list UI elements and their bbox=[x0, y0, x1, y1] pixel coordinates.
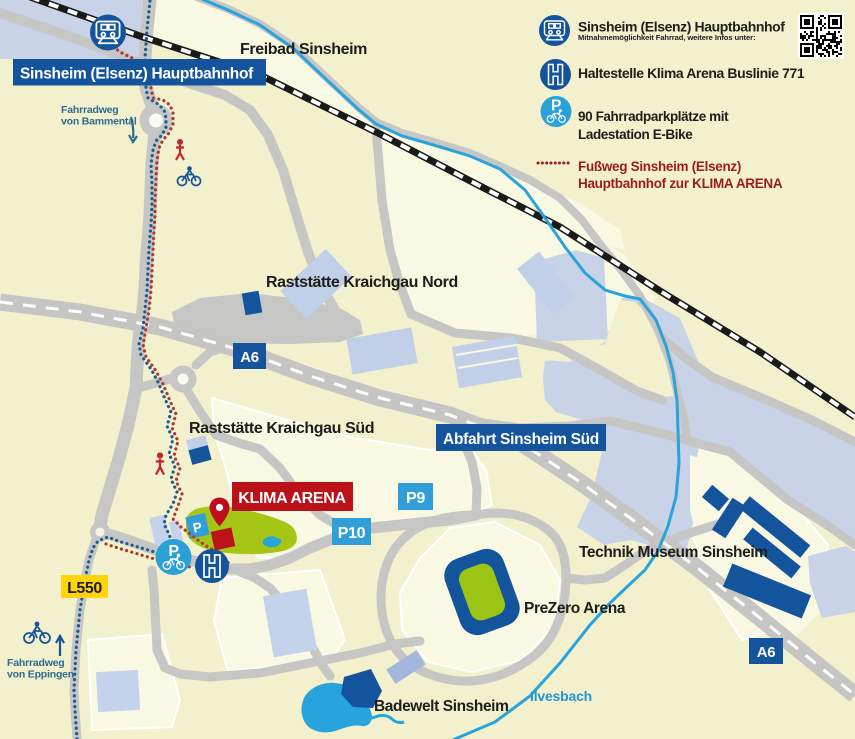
svg-text:A6: A6 bbox=[757, 644, 776, 661]
svg-text:P9: P9 bbox=[406, 490, 425, 507]
svg-text:Ilvesbach: Ilvesbach bbox=[530, 688, 592, 704]
svg-text:von Bammental: von Bammental bbox=[61, 116, 137, 128]
svg-text:Ladestation E-Bike: Ladestation E-Bike bbox=[578, 127, 693, 142]
svg-text:Fußweg Sinsheim (Elsenz): Fußweg Sinsheim (Elsenz) bbox=[578, 159, 741, 174]
svg-text:90 Fahrradparkplätze mit: 90 Fahrradparkplätze mit bbox=[578, 109, 729, 124]
svg-text:Raststätte Kraichgau Süd: Raststätte Kraichgau Süd bbox=[189, 420, 374, 437]
svg-text:Hauptbahnhof zur KLIMA ARENA: Hauptbahnhof zur KLIMA ARENA bbox=[578, 176, 783, 191]
svg-text:Badewelt Sinsheim: Badewelt Sinsheim bbox=[374, 698, 508, 715]
svg-text:PreZero Arena: PreZero Arena bbox=[524, 600, 626, 617]
svg-text:Haltestelle Klima Arena Buslin: Haltestelle Klima Arena Buslinie 771 bbox=[578, 65, 805, 81]
svg-text:Freibad Sinsheim: Freibad Sinsheim bbox=[240, 41, 367, 58]
svg-text:Sinsheim (Elsenz) Hauptbahnhof: Sinsheim (Elsenz) Hauptbahnhof bbox=[20, 66, 254, 83]
svg-text:Raststätte Kraichgau Nord: Raststätte Kraichgau Nord bbox=[266, 274, 458, 291]
svg-text:Abfahrt Sinsheim Süd: Abfahrt Sinsheim Süd bbox=[443, 431, 599, 448]
svg-text:KLIMA ARENA: KLIMA ARENA bbox=[238, 490, 346, 507]
svg-text:von Eppingen: von Eppingen bbox=[7, 669, 74, 681]
svg-text:Fahrradweg: Fahrradweg bbox=[7, 657, 65, 669]
svg-text:L550: L550 bbox=[67, 580, 102, 597]
svg-text:A6: A6 bbox=[240, 349, 259, 366]
svg-text:Fahrradweg: Fahrradweg bbox=[61, 104, 119, 116]
svg-text:Technik Museum Sinsheim: Technik Museum Sinsheim bbox=[579, 544, 768, 561]
svg-text:P10: P10 bbox=[338, 525, 366, 542]
svg-text:Mitnahmemöglichkeit Fahrrad, w: Mitnahmemöglichkeit Fahrrad, weitere Inf… bbox=[578, 33, 755, 42]
